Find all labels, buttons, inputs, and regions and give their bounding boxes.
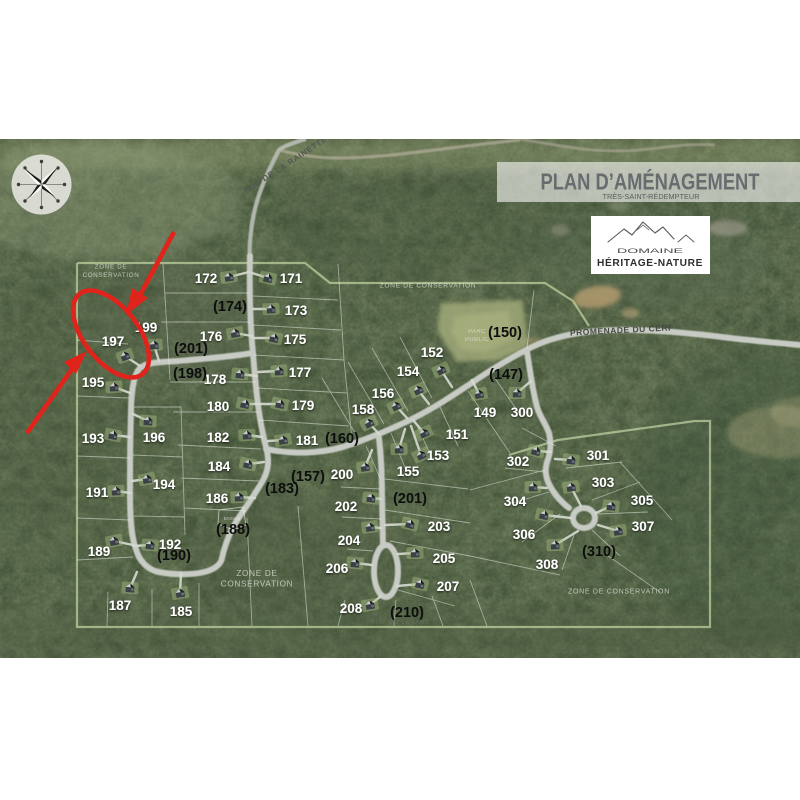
svg-text:PLAN D’AMÉNAGEMENT: PLAN D’AMÉNAGEMENT bbox=[541, 168, 760, 195]
svg-text:(188): (188) bbox=[216, 522, 250, 538]
svg-text:206: 206 bbox=[326, 561, 349, 576]
svg-text:182: 182 bbox=[207, 430, 230, 445]
svg-text:306: 306 bbox=[513, 527, 536, 542]
svg-text:187: 187 bbox=[109, 598, 132, 613]
svg-text:186: 186 bbox=[206, 491, 229, 506]
svg-text:204: 204 bbox=[338, 533, 361, 548]
svg-text:184: 184 bbox=[208, 459, 231, 474]
svg-text:TRÈS-SAINT-RÉDEMPTEUR: TRÈS-SAINT-RÉDEMPTEUR bbox=[603, 192, 701, 201]
svg-text:202: 202 bbox=[335, 499, 358, 514]
svg-text:181: 181 bbox=[296, 433, 319, 448]
svg-text:208: 208 bbox=[340, 601, 363, 616]
svg-text:304: 304 bbox=[504, 494, 527, 509]
svg-text:178: 178 bbox=[204, 372, 227, 387]
svg-text:203: 203 bbox=[428, 519, 451, 534]
svg-text:(147): (147) bbox=[489, 367, 523, 383]
svg-text:177: 177 bbox=[289, 365, 312, 380]
svg-text:185: 185 bbox=[170, 604, 193, 619]
svg-text:303: 303 bbox=[592, 475, 615, 490]
svg-text:195: 195 bbox=[82, 375, 105, 390]
svg-text:191: 191 bbox=[86, 485, 109, 500]
svg-text:152: 152 bbox=[421, 345, 444, 360]
svg-text:(174): (174) bbox=[213, 299, 247, 315]
svg-text:193: 193 bbox=[82, 431, 105, 446]
svg-text:156: 156 bbox=[372, 386, 395, 401]
svg-text:BASSIN: BASSIN bbox=[224, 516, 241, 521]
svg-text:RUE DU LEVANT: RUE DU LEVANT bbox=[370, 619, 429, 626]
svg-text:197: 197 bbox=[102, 334, 125, 349]
svg-text:CONSERVATION: CONSERVATION bbox=[221, 580, 294, 589]
svg-text:151: 151 bbox=[446, 427, 469, 442]
svg-text:(201): (201) bbox=[174, 341, 208, 357]
svg-text:149: 149 bbox=[474, 405, 497, 420]
svg-text:172: 172 bbox=[195, 271, 218, 286]
svg-text:PARC: PARC bbox=[468, 329, 486, 335]
svg-text:200: 200 bbox=[331, 467, 354, 482]
svg-text:ZONE DE CONSERVATION: ZONE DE CONSERVATION bbox=[380, 282, 477, 289]
svg-text:205: 205 bbox=[433, 551, 456, 566]
svg-text:307: 307 bbox=[632, 519, 655, 534]
svg-text:(310): (310) bbox=[582, 544, 616, 560]
svg-text:305: 305 bbox=[631, 493, 654, 508]
svg-text:(160): (160) bbox=[325, 431, 359, 447]
svg-text:(201): (201) bbox=[393, 491, 427, 507]
svg-text:155: 155 bbox=[397, 464, 420, 479]
svg-text:173: 173 bbox=[285, 303, 308, 318]
svg-text:171: 171 bbox=[280, 271, 303, 286]
svg-text:175: 175 bbox=[284, 332, 307, 347]
svg-text:ZONE DE: ZONE DE bbox=[236, 569, 277, 578]
svg-text:CONSERVATION: CONSERVATION bbox=[83, 272, 140, 279]
svg-text:308: 308 bbox=[536, 557, 559, 572]
svg-text:DOMAINE: DOMAINE bbox=[617, 248, 684, 255]
svg-text:(198): (198) bbox=[173, 366, 207, 382]
svg-text:153: 153 bbox=[427, 448, 450, 463]
svg-text:207: 207 bbox=[437, 579, 460, 594]
svg-text:ZONE DE CONSERVATION: ZONE DE CONSERVATION bbox=[568, 588, 670, 595]
svg-text:300: 300 bbox=[511, 405, 534, 420]
svg-text:196: 196 bbox=[143, 430, 166, 445]
svg-text:302: 302 bbox=[507, 454, 530, 469]
svg-text:194: 194 bbox=[153, 477, 176, 492]
svg-text:301: 301 bbox=[587, 448, 610, 463]
svg-text:154: 154 bbox=[397, 364, 420, 379]
svg-text:HÉRITAGE-NATURE: HÉRITAGE-NATURE bbox=[597, 256, 703, 269]
svg-text:(183): (183) bbox=[265, 481, 299, 497]
svg-text:(150): (150) bbox=[488, 325, 522, 341]
svg-text:189: 189 bbox=[88, 544, 111, 559]
svg-text:179: 179 bbox=[292, 398, 315, 413]
svg-text:PUBLIC: PUBLIC bbox=[465, 337, 489, 343]
svg-text:(190): (190) bbox=[157, 548, 191, 564]
svg-text:ZONE DE: ZONE DE bbox=[95, 263, 127, 270]
svg-text:180: 180 bbox=[207, 399, 230, 414]
svg-text:158: 158 bbox=[352, 402, 375, 417]
